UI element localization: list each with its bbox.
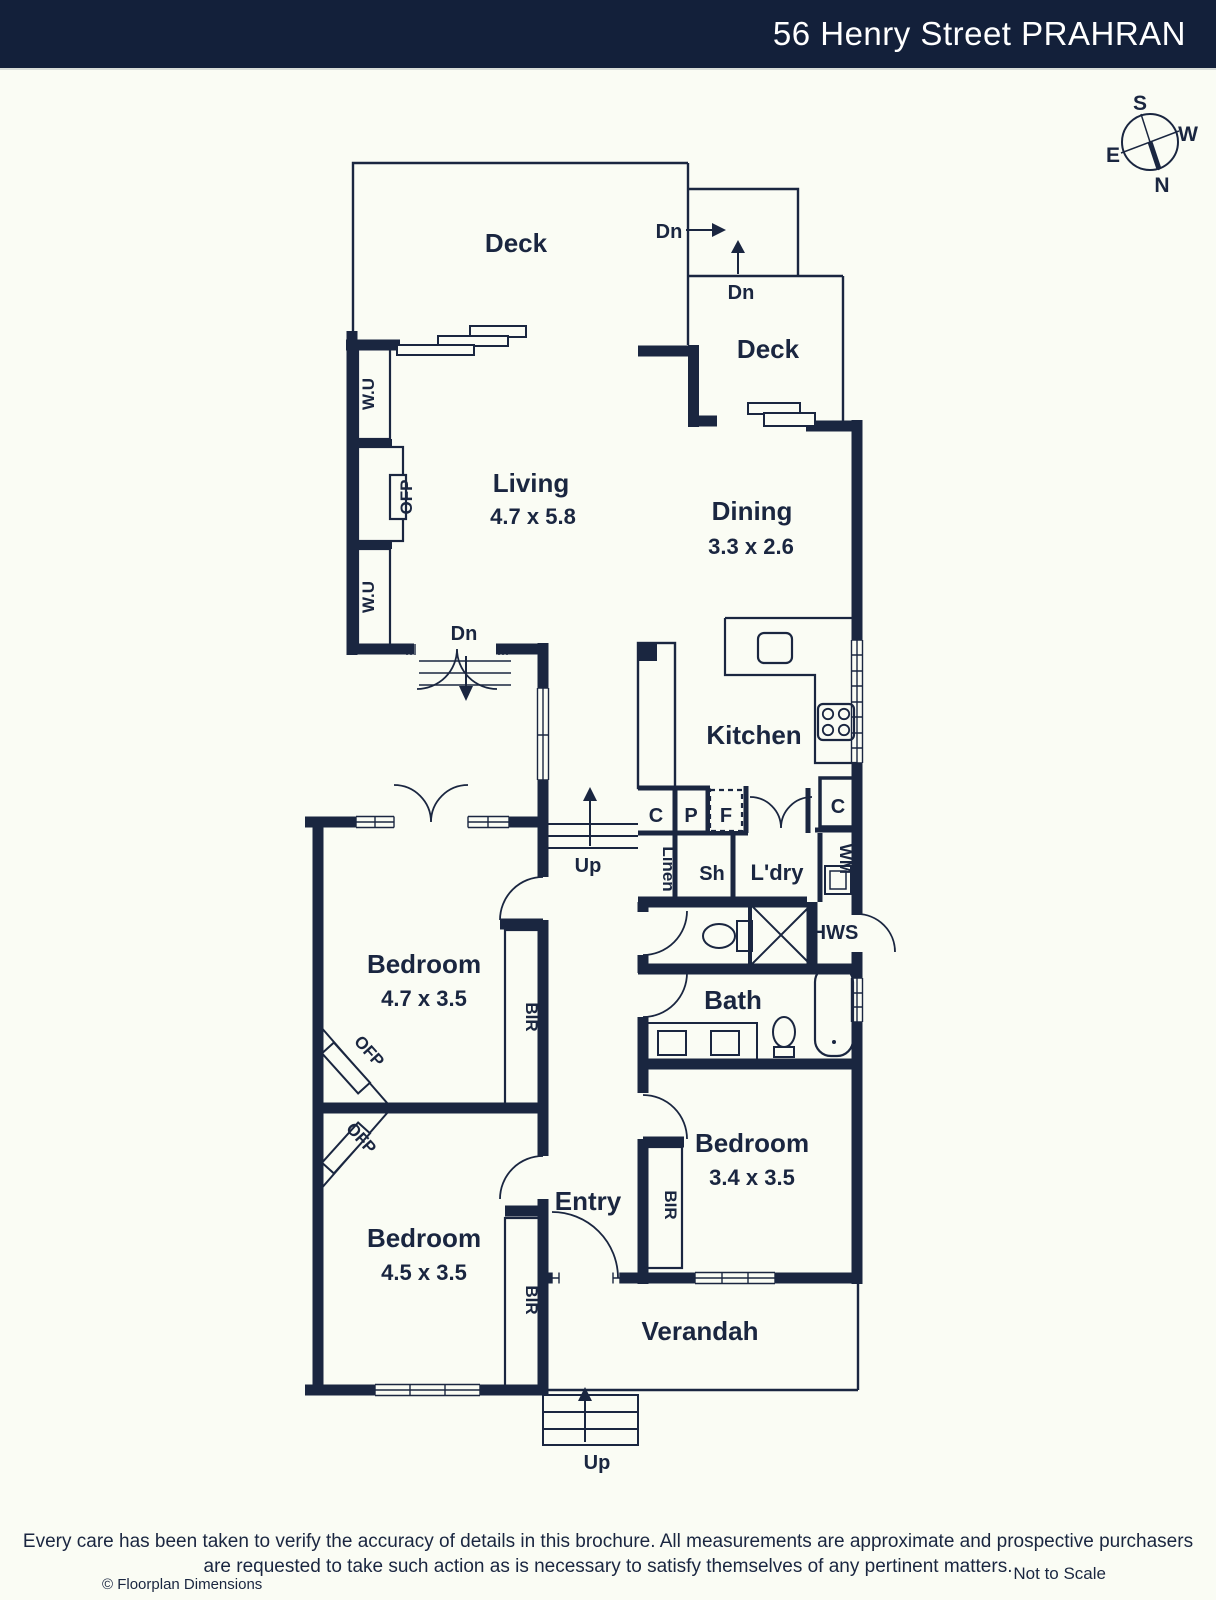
living-french-doors [417, 649, 497, 689]
kitchen-label: Kitchen [706, 720, 801, 750]
front-door [552, 1212, 618, 1278]
window-bed-front-south [375, 1385, 480, 1396]
compass-s-label: S [1133, 92, 1147, 115]
laundry-label: L'dry [751, 860, 805, 885]
deck-outline [353, 163, 843, 421]
washing-machine-label: WM [836, 844, 855, 874]
bir-bed-rear-label: BIR [661, 1190, 680, 1219]
shower-label: Sh [699, 863, 725, 885]
entry-label: Entry [555, 1186, 622, 1216]
window-bed-main-right [468, 817, 509, 828]
fireplace-living-label: OFP [397, 480, 416, 515]
vanity-icon [643, 1023, 757, 1062]
window-bed-rear-south [695, 1273, 775, 1284]
hollow-wall-pier [638, 643, 657, 661]
bed-main-french-doors [394, 785, 468, 822]
compass-n-label: N [1154, 174, 1169, 197]
fireplace-bed-main-label: OFP [350, 1032, 388, 1071]
disclaimer-line-1: Every care has been taken to verify the … [0, 1531, 1216, 1553]
window-bed-main-left [356, 817, 394, 828]
linen-label: Linen [659, 846, 678, 891]
deck-dn-label-1: Dn [656, 221, 683, 243]
window-hall-west [538, 688, 549, 780]
bath-door [643, 973, 687, 1017]
compass-w-label: W [1178, 123, 1198, 146]
verandah-label: Verandah [641, 1316, 758, 1346]
bed-front-door [500, 1156, 543, 1199]
wardrobe-unit-top-label: W.U [359, 378, 378, 410]
hollow-wall [638, 643, 675, 788]
bed-rear-door [643, 1095, 687, 1139]
hws-door [857, 914, 895, 952]
window-kitchen-east [852, 640, 863, 763]
compass-needle [1150, 142, 1159, 169]
cooktop-icon [818, 704, 854, 740]
deck-side-stairs [748, 403, 815, 426]
bed-front-dims: 4.5 x 3.5 [381, 1260, 467, 1285]
fridge-label: F [720, 805, 732, 827]
bed-rear-label: Bedroom [695, 1128, 809, 1158]
floorplan-canvas: S W E N [0, 0, 1216, 1600]
cupboard-label-2: C [831, 796, 845, 818]
dining-label: Dining [712, 496, 793, 526]
toilet-bath-icon [773, 1017, 795, 1057]
kitchen-sink-icon [758, 633, 792, 663]
toilet-wc-icon [703, 921, 752, 951]
bathtub-icon [815, 966, 853, 1056]
bir-bed-main-label: BIR [522, 1002, 541, 1031]
bed-front-label: Bedroom [367, 1223, 481, 1253]
compass-rose: S W E N [1106, 92, 1198, 197]
bed-main-door [500, 877, 543, 920]
bed-rear-dims: 3.4 x 3.5 [709, 1165, 795, 1190]
bed-main-dims: 4.7 x 3.5 [381, 986, 467, 1011]
credit-note: © Floorplan Dimensions [102, 1576, 262, 1593]
deck-dn-up-arrow [731, 240, 745, 274]
living-dn-label: Dn [451, 623, 478, 645]
deck-top-label: Deck [485, 228, 548, 258]
verandah-steps [543, 1395, 638, 1445]
wc-door [643, 911, 687, 955]
hall-up-label: Up [575, 855, 602, 877]
room-labels: Deck Deck Living 4.7 x 5.8 Dining 3.3 x … [367, 228, 809, 1346]
laundry-doors [750, 797, 812, 828]
hws-label: HWS [812, 922, 859, 944]
deck-top-stairs [397, 326, 526, 355]
living-label: Living [493, 468, 570, 498]
pantry-label: P [684, 805, 697, 827]
living-dims: 4.7 x 5.8 [490, 504, 576, 529]
bath-label: Bath [704, 985, 762, 1015]
deck-dn-label-2: Dn [728, 282, 755, 304]
front-door-sidelights [552, 1273, 620, 1284]
bed-main-label: Bedroom [367, 949, 481, 979]
deck-dn-right-arrow [686, 223, 726, 237]
cupboard-label-1: C [649, 805, 663, 827]
hall-steps [545, 824, 638, 848]
kitchen-hall-wall [638, 643, 675, 788]
verandah-up-label: Up [584, 1452, 611, 1474]
compass-e-label: E [1106, 144, 1120, 167]
wardrobe-unit-bottom-label: W.U [359, 581, 378, 613]
bir-bed-front-label: BIR [522, 1285, 541, 1314]
hall-up-arrow [583, 787, 597, 846]
shower-box-icon [750, 904, 812, 966]
scale-note: Not to Scale [1013, 1564, 1106, 1584]
dining-dims: 3.3 x 2.6 [708, 534, 794, 559]
deck-side-label: Deck [737, 334, 800, 364]
